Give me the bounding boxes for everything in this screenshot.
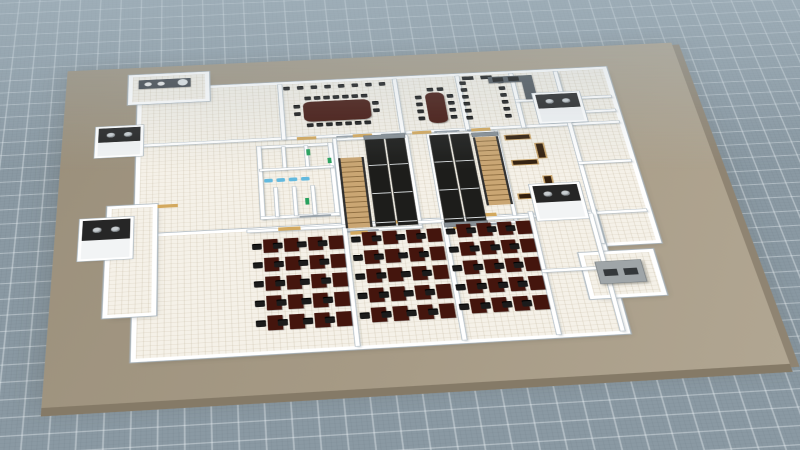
north-wall-guest-chairs [283, 87, 290, 91]
restroom-sink [301, 177, 310, 181]
office-desk [523, 257, 541, 271]
office-desk [429, 246, 446, 260]
kitchen-cooktop [492, 77, 504, 82]
office-chair [253, 262, 263, 269]
rooftop-hvac-unit [594, 259, 647, 284]
conference-chairs-bottom [345, 121, 352, 125]
office-chair [252, 244, 262, 250]
office-chair [425, 289, 436, 296]
conference-chairs-top [323, 96, 330, 100]
north-wall-guest-chairs [310, 85, 317, 89]
office-chair [298, 260, 308, 267]
exit-sign [306, 149, 310, 155]
office-chair [374, 253, 384, 260]
office-chair [273, 242, 283, 248]
roof-fan [562, 98, 571, 103]
conference-chairs-top [332, 95, 339, 99]
office-chair [256, 320, 266, 327]
office-chair [351, 236, 361, 242]
office-chair [449, 246, 460, 252]
office-chair [300, 278, 310, 285]
north-wall-guest-chairs [351, 83, 358, 87]
office-chair [398, 252, 409, 259]
training-chairs-east [503, 107, 510, 111]
office-chair [406, 310, 417, 317]
training-chairs-west [462, 95, 469, 99]
office-chair [498, 282, 509, 289]
conference-chairs-left [293, 105, 300, 109]
north-wall-guest-chairs [324, 85, 331, 89]
office-chair [353, 255, 363, 262]
restroom-sink [276, 178, 285, 182]
conference-chairs-right [372, 101, 379, 105]
meeting-chairs-right [446, 94, 453, 98]
office-chair [466, 227, 477, 233]
office-chair [371, 235, 381, 241]
office-chair [480, 302, 491, 309]
office-desk [439, 303, 456, 318]
office-chair [325, 316, 336, 323]
roof-fan [543, 191, 553, 197]
office-desk [336, 311, 353, 326]
office-desk [515, 220, 532, 234]
office-desk [532, 295, 550, 310]
conference-chairs-top [351, 94, 358, 98]
conference-chairs-top [361, 94, 368, 98]
conference-chairs-bottom [307, 123, 314, 127]
office-desk [334, 291, 350, 306]
office-chair [403, 290, 414, 297]
meeting-chairs-right [449, 108, 456, 112]
meeting-chairs-left [415, 96, 422, 100]
office-chair [455, 284, 466, 291]
meeting-chairs-left [418, 116, 425, 120]
office-chair [473, 264, 484, 271]
office-chair [254, 281, 264, 288]
roof-fan [545, 99, 554, 104]
office-chair [469, 245, 480, 251]
kitchen-cooktop [508, 76, 520, 81]
office-chair [319, 258, 329, 265]
office-chair [276, 299, 286, 306]
vent-shaft-east-2 [532, 184, 585, 219]
office-chair [321, 277, 331, 284]
office-chair [379, 291, 390, 298]
office-chair [517, 280, 528, 287]
meeting-chairs-top [436, 87, 443, 91]
restroom-sink [289, 177, 298, 181]
office-chair [255, 300, 265, 307]
office-chair [357, 292, 368, 299]
office-chair [401, 271, 412, 278]
office-chair [297, 241, 307, 247]
hvac-vent [603, 268, 619, 275]
office-chair [459, 303, 470, 310]
meeting-chairs-right [450, 115, 457, 119]
scene-plane [41, 43, 789, 408]
office-chair [428, 308, 439, 315]
roof-fan [561, 190, 571, 196]
office-chair [323, 297, 334, 304]
conference-chairs-top [304, 96, 311, 100]
training-chairs-west [460, 88, 467, 92]
office-chair [521, 300, 532, 307]
office-chair [381, 311, 392, 318]
office-desk [332, 272, 348, 287]
office-building-floorplan [106, 69, 684, 360]
office-chair [513, 262, 524, 269]
shaft-roof [98, 127, 140, 143]
conference-chairs-bottom [364, 120, 371, 124]
shaft-roof [532, 184, 581, 203]
roof-fan [92, 227, 101, 233]
training-chairs-east [502, 100, 509, 104]
office-chair [502, 301, 513, 308]
hvac-vent [623, 267, 639, 274]
training-chairs-east [505, 114, 512, 118]
training-chairs-west [466, 116, 473, 120]
meeting-chairs-top [426, 88, 433, 92]
office-chair [318, 240, 328, 246]
conference-chairs-top [314, 96, 321, 100]
office-chair [301, 298, 311, 305]
north-wall-guest-chairs [365, 83, 372, 87]
office-chair [422, 270, 433, 277]
north-wall-guest-chairs [297, 86, 304, 90]
office-chair [395, 234, 405, 240]
meeting-chairs-right [448, 101, 455, 105]
meeting-chairs-left [416, 102, 423, 106]
office-chair [376, 272, 387, 279]
shaft-roof [535, 93, 581, 109]
office-desk [435, 284, 452, 299]
training-chairs-east [498, 86, 505, 90]
north-wall-guest-chairs [379, 82, 386, 86]
office-chair [355, 273, 366, 280]
office-chair [476, 283, 487, 290]
north-wall-guest-chairs [338, 84, 345, 88]
training-chairs-east [500, 93, 507, 97]
office-chair [303, 318, 314, 325]
exit-sign [305, 198, 309, 205]
office-desk [330, 254, 346, 268]
office-desk [528, 275, 546, 290]
conference-chairs-bottom [355, 121, 362, 125]
roof-fan [107, 133, 115, 138]
training-chairs-west [459, 81, 466, 85]
floorplan-3d-viewport[interactable] [0, 0, 800, 450]
office-chair [494, 263, 505, 270]
conference-chairs-right [373, 108, 380, 112]
vent-shaft-east-1 [535, 93, 584, 122]
office-chair [486, 226, 497, 232]
office-chair [419, 251, 430, 258]
office-chair [490, 244, 501, 250]
office-desk [426, 228, 442, 242]
meeting-chairs-left [417, 109, 424, 113]
office-chair [505, 225, 516, 231]
office-chair [275, 280, 285, 287]
roof-fan [124, 132, 132, 137]
office-chair [274, 261, 284, 268]
roof-fan [111, 226, 120, 232]
training-chairs-west [465, 109, 472, 113]
vent-shaft-west-1 [97, 127, 140, 157]
conference-chairs-bottom [336, 122, 343, 126]
restroom-sink [264, 179, 273, 183]
office-chair [509, 243, 520, 249]
vent-shaft-west-2 [81, 219, 131, 260]
training-side-table [462, 76, 474, 80]
shaft-roof [82, 219, 131, 241]
office-desk [519, 238, 536, 252]
training-chairs-west [463, 102, 470, 106]
conference-chairs-bottom [316, 123, 323, 127]
conference-chairs-left [294, 112, 301, 116]
conference-table [303, 99, 372, 122]
office-chair [445, 228, 456, 234]
conference-chairs-top [342, 95, 349, 99]
office-chair [416, 233, 426, 239]
office-desk [328, 235, 344, 249]
office-desk [432, 265, 449, 280]
office-chair [278, 319, 289, 326]
office-chair [359, 312, 370, 319]
exit-sign [327, 158, 331, 163]
office-chair [452, 265, 463, 272]
conference-chairs-bottom [326, 122, 333, 126]
